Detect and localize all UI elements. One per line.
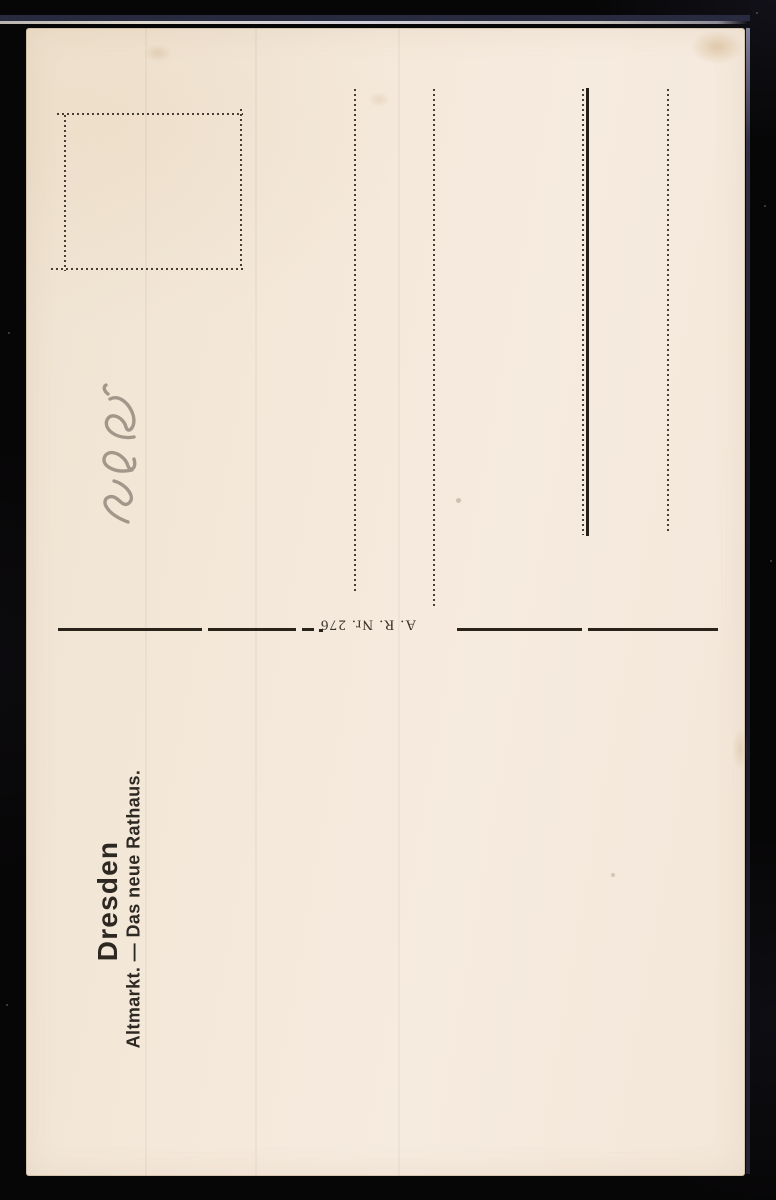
card-edge-shadow [746, 28, 750, 1174]
paper-stain [611, 873, 615, 877]
divider-segment [302, 628, 314, 631]
paper-stain [691, 30, 743, 64]
paper-crease [255, 28, 257, 1176]
paper-stain [144, 44, 172, 62]
dust-speck [756, 12, 758, 14]
caption-title: Dresden [92, 841, 124, 961]
scan-highlight-line [0, 21, 748, 24]
divider-segment [588, 628, 718, 631]
dust-speck [6, 1004, 8, 1006]
paper-crease [145, 28, 147, 1176]
stamp-box-top-edge [57, 113, 243, 115]
handwritten-pencil-squiggle [88, 382, 148, 532]
postcard-back: A. R. Nr. 276 Dresden Altmarkt. — Das ne… [26, 28, 745, 1176]
caption-subtitle: Altmarkt. — Das neue Rathaus. [124, 770, 145, 1049]
address-rule-1 [354, 89, 356, 593]
address-rule-4 [667, 89, 669, 531]
publisher-number: A. R. Nr. 276 [320, 616, 416, 633]
stamp-box-left-edge [64, 115, 66, 271]
dust-speck [770, 560, 772, 562]
stamp-box-bottom-edge [51, 268, 245, 270]
divider-segment [58, 628, 202, 631]
paper-crease [398, 28, 400, 1176]
address-rule-solid [586, 88, 589, 536]
dust-speck [764, 205, 766, 207]
paper-stain [456, 498, 461, 503]
divider-segment [208, 628, 296, 631]
divider-segment [457, 628, 582, 631]
paper-stain [368, 92, 390, 107]
stamp-box-right-edge [240, 109, 242, 266]
photo-backdrop: A. R. Nr. 276 Dresden Altmarkt. — Das ne… [0, 0, 776, 1200]
dust-speck [8, 332, 10, 334]
address-rule-2 [433, 89, 435, 607]
paper-stain [732, 728, 748, 770]
address-rule-3 [582, 89, 584, 535]
